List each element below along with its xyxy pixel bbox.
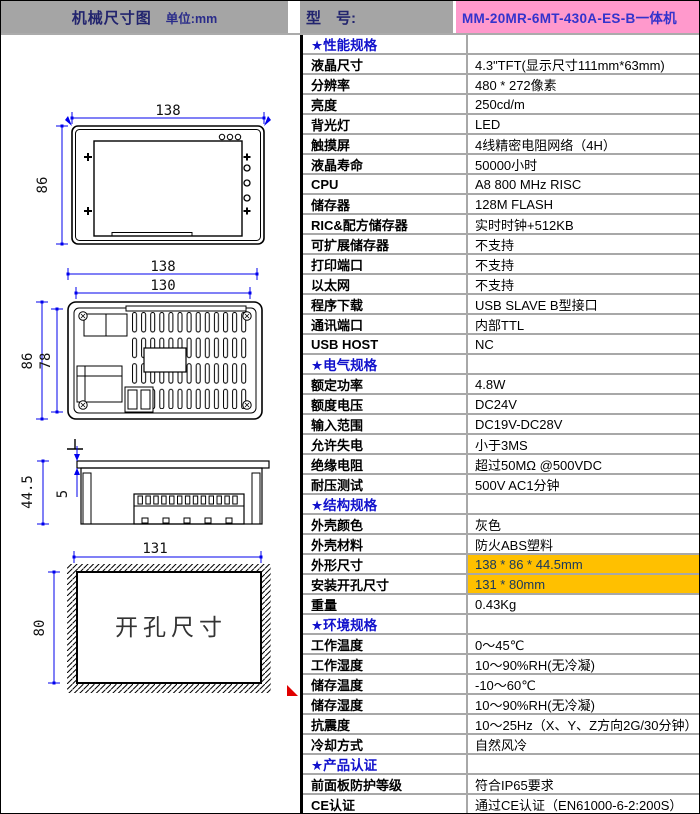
spec-value: 131 * 80mm [468, 575, 699, 593]
spec-value: 500V AC1分钟 [468, 475, 699, 493]
spec-value: 灰色 [468, 515, 699, 533]
front-width-dim: 138 [155, 103, 180, 119]
spec-value: 通过CE认证（EN61000-6-2:200S） [468, 795, 699, 813]
spec-label: 通讯端口 [303, 315, 468, 333]
spec-label: 打印端口 [303, 255, 468, 273]
spec-value: 4线精密电阻网络（4H） [468, 135, 699, 153]
spec-section-row: ★结构规格 [303, 493, 699, 513]
spec-label: 前面板防护等级 [303, 775, 468, 793]
spec-section-row: ★环境规格 [303, 613, 699, 633]
spec-label: 可扩展储存器 [303, 235, 468, 253]
spec-label: 输入范围 [303, 415, 468, 433]
spec-value: 128M FLASH [468, 195, 699, 213]
spec-label: 触摸屏 [303, 135, 468, 153]
spec-section-row: ★产品认证 [303, 753, 699, 773]
spec-value: 4.8W [468, 375, 699, 393]
spec-row: 背光灯LED [303, 113, 699, 133]
back-outer-height-dim: 86 [20, 353, 36, 370]
terminal-tabs [142, 518, 232, 523]
led-indicator-icon [227, 134, 232, 139]
spec-value: 超过50MΩ @500VDC [468, 455, 699, 473]
back-inner-height-dim: 78 [38, 353, 54, 370]
spec-label: 储存温度 [303, 675, 468, 693]
spec-label: 绝缘电阻 [303, 455, 468, 473]
spec-label: 额度电压 [303, 395, 468, 413]
datasheet-page: 机械尺寸图 单位:mm 型 号: MM-20MR-6MT-430A-ES-B一体… [0, 0, 700, 814]
spec-row: 绝缘电阻超过50MΩ @500VDC [303, 453, 699, 473]
spec-row: 触摸屏4线精密电阻网络（4H） [303, 133, 699, 153]
spec-label: 工作温度 [303, 635, 468, 653]
spec-row: 储存湿度10～90%RH(无冷凝) [303, 693, 699, 713]
spec-value: 实时时钟+512KB [468, 215, 699, 233]
spec-label: 程序下载 [303, 295, 468, 313]
spec-row: 储存温度-10～60℃ [303, 673, 699, 693]
spec-value: 10～90%RH(无冷凝) [468, 655, 699, 673]
spec-value: A8 800 MHz RISC [468, 175, 699, 193]
spec-row: USB HOSTNC [303, 333, 699, 353]
spec-value: 10～25Hz（X、Y、Z方向2G/30分钟） [468, 715, 699, 733]
front-screen [94, 141, 242, 236]
spec-value: 内部TTL [468, 315, 699, 333]
spec-row: 分辨率480 * 272像素 [303, 73, 699, 93]
spec-row: 可扩展储存器不支持 [303, 233, 699, 253]
spec-label: 重量 [303, 595, 468, 613]
red-marker-icon [287, 685, 298, 696]
spec-label: 抗震度 [303, 715, 468, 733]
spec-row: CPUA8 800 MHz RISC [303, 173, 699, 193]
spec-label: 耐压测试 [303, 475, 468, 493]
spec-label: 分辨率 [303, 75, 468, 93]
spec-label: 以太网 [303, 275, 468, 293]
spec-value: 防火ABS塑料 [468, 535, 699, 553]
spec-value [468, 615, 699, 633]
spec-label: 安装开孔尺寸 [303, 575, 468, 593]
spec-label: 允许失电 [303, 435, 468, 453]
spec-value: 50000小时 [468, 155, 699, 173]
led-indicator-icon [235, 134, 240, 139]
spec-row: 抗震度10～25Hz（X、Y、Z方向2G/30分钟） [303, 713, 699, 733]
spec-label: USB HOST [303, 335, 468, 353]
spec-row: 前面板防护等级符合IP65要求 [303, 773, 699, 793]
spec-row: 通讯端口内部TTL [303, 313, 699, 333]
spec-row: 工作温度0～45℃ [303, 633, 699, 653]
spec-value: 自然风冷 [468, 735, 699, 753]
spec-row: 重量0.43Kg [303, 593, 699, 613]
spec-row: 额定功率4.8W [303, 373, 699, 393]
cutout-label: 开孔尺寸 [115, 614, 227, 640]
spec-label: 工作湿度 [303, 655, 468, 673]
spec-label: 液晶寿命 [303, 155, 468, 173]
spec-value: 0～45℃ [468, 635, 699, 653]
spec-row: 外形尺寸138 * 86 * 44.5mm [303, 553, 699, 573]
terminal-pins [138, 496, 237, 504]
side-key-icon [244, 165, 250, 171]
spec-value: -10～60℃ [468, 675, 699, 693]
drawing-title: 机械尺寸图 [72, 7, 152, 28]
spec-value: 不支持 [468, 275, 699, 293]
section-title: ★性能规格 [303, 35, 468, 53]
side-bezel-dim: 5 [55, 490, 71, 498]
side-key-icon [244, 195, 250, 201]
spec-table: ★性能规格液晶尺寸4.3"TFT(显示尺寸111mm*63mm)分辨率480 *… [303, 35, 699, 813]
spec-label: 亮度 [303, 95, 468, 113]
spec-row: 打印端口不支持 [303, 253, 699, 273]
spec-label: CPU [303, 175, 468, 193]
spec-value: 250cd/m [468, 95, 699, 113]
spec-value: DC24V [468, 395, 699, 413]
spec-value: 10～90%RH(无冷凝) [468, 695, 699, 713]
spec-label: CE认证 [303, 795, 468, 813]
spec-label: 额定功率 [303, 375, 468, 393]
mechanical-drawing: 138 86 13 [1, 35, 300, 811]
section-title: ★产品认证 [303, 755, 468, 773]
cutout-drawing: 131 开孔尺寸 80 [32, 541, 271, 693]
side-depth-dim: 44.5 [20, 475, 36, 509]
side-key-icon [244, 180, 250, 186]
spec-value: USB SLAVE B型接口 [468, 295, 699, 313]
spec-label: 冷却方式 [303, 735, 468, 753]
spec-row: 输入范围DC19V-DC28V [303, 413, 699, 433]
spec-row: 液晶尺寸4.3"TFT(显示尺寸111mm*63mm) [303, 53, 699, 73]
calibration-cross-icon [84, 153, 92, 215]
mechanical-drawing-panel: 138 86 13 [1, 35, 303, 813]
drawing-unit: 单位:mm [166, 8, 217, 27]
drawing-header-cell: 机械尺寸图 单位:mm [1, 1, 300, 33]
spec-value: 小于3MS [468, 435, 699, 453]
spec-value: 不支持 [468, 255, 699, 273]
spec-section-row: ★电气规格 [303, 353, 699, 373]
spec-value [468, 35, 699, 53]
cutout-height-dim: 80 [32, 620, 48, 637]
side-view-drawing: 44.5 5 [20, 446, 269, 526]
back-outer-width-dim: 138 [150, 259, 175, 275]
spec-value: 4.3"TFT(显示尺寸111mm*63mm) [468, 55, 699, 73]
spec-value [468, 355, 699, 373]
spec-value: 138 * 86 * 44.5mm [468, 555, 699, 573]
spec-label: 储存湿度 [303, 695, 468, 713]
cutout-width-dim: 131 [142, 541, 167, 557]
spec-row: CE认证通过CE认证（EN61000-6-2:200S） [303, 793, 699, 813]
spec-row: 允许失电小于3MS [303, 433, 699, 453]
front-height-dim: 86 [35, 177, 51, 194]
model-value-cell: MM-20MR-6MT-430A-ES-B一体机 [456, 1, 699, 33]
spec-label: 储存器 [303, 195, 468, 213]
spec-label: RIC&配方储存器 [303, 215, 468, 233]
ground-symbol-icon [67, 439, 83, 449]
spec-label: 外壳材料 [303, 535, 468, 553]
spec-row: 外壳颜色灰色 [303, 513, 699, 533]
spec-value: 0.43Kg [468, 595, 699, 613]
spec-row: 液晶寿命50000小时 [303, 153, 699, 173]
spec-value: NC [468, 335, 699, 353]
model-value: MM-20MR-6MT-430A-ES-B一体机 [462, 7, 677, 27]
back-inner-width-dim: 130 [150, 278, 175, 294]
front-view-drawing: 138 86 [35, 103, 271, 246]
spec-value: 不支持 [468, 235, 699, 253]
spec-label: 外形尺寸 [303, 555, 468, 573]
back-view-drawing: 138 130 86 78 [20, 259, 262, 449]
spec-row: 安装开孔尺寸131 * 80mm [303, 573, 699, 593]
spec-row: 程序下载USB SLAVE B型接口 [303, 293, 699, 313]
spec-label: 背光灯 [303, 115, 468, 133]
spec-value: LED [468, 115, 699, 133]
spec-label: 液晶尺寸 [303, 55, 468, 73]
section-title: ★电气规格 [303, 355, 468, 373]
model-label-cell: 型 号: [300, 1, 456, 33]
spec-section-row: ★性能规格 [303, 35, 699, 53]
spec-value: 480 * 272像素 [468, 75, 699, 93]
spec-row: 工作湿度10～90%RH(无冷凝) [303, 653, 699, 673]
spec-row: 额度电压DC24V [303, 393, 699, 413]
spec-row: 外壳材料防火ABS塑料 [303, 533, 699, 553]
spec-row: 以太网不支持 [303, 273, 699, 293]
section-title: ★结构规格 [303, 495, 468, 513]
spec-row: 亮度250cd/m [303, 93, 699, 113]
spec-value: DC19V-DC28V [468, 415, 699, 433]
spec-value [468, 495, 699, 513]
spec-row: RIC&配方储存器实时时钟+512KB [303, 213, 699, 233]
section-title: ★环境规格 [303, 615, 468, 633]
spec-row: 储存器128M FLASH [303, 193, 699, 213]
model-label: 型 号: [306, 7, 356, 28]
spec-label: 外壳颜色 [303, 515, 468, 533]
spec-row: 耐压测试500V AC1分钟 [303, 473, 699, 493]
led-indicator-icon [219, 134, 224, 139]
spec-row: 冷却方式自然风冷 [303, 733, 699, 753]
spec-value [468, 755, 699, 773]
header-bar: 机械尺寸图 单位:mm 型 号: MM-20MR-6MT-430A-ES-B一体… [1, 1, 699, 35]
spec-value: 符合IP65要求 [468, 775, 699, 793]
